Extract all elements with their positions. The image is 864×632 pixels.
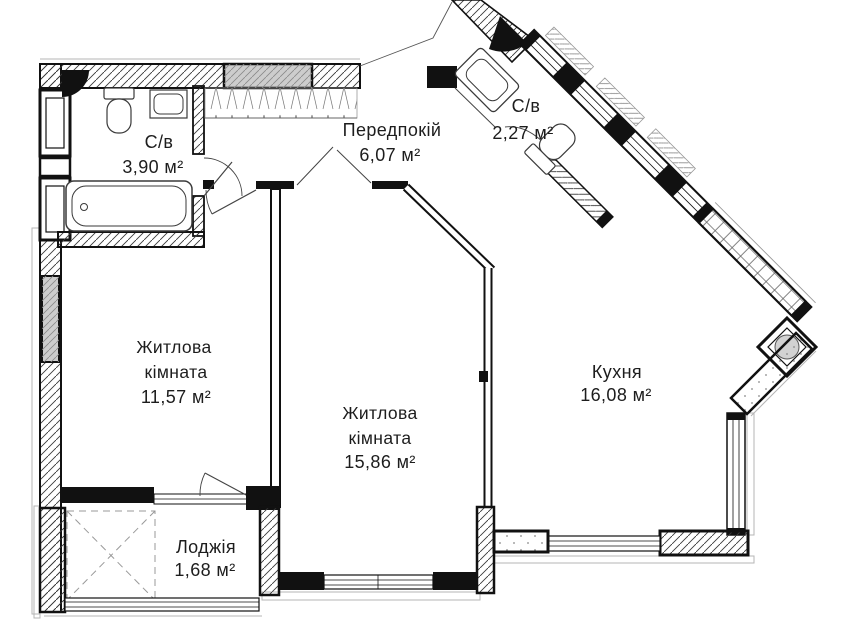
floor-plan-drawing: С/в 3,90 м² Передпокій 6,07 м² С/в 2,27 … (0, 0, 864, 632)
loggia-structure (40, 473, 280, 612)
corner-marker (62, 70, 89, 97)
room-label-kitchen: Кухня (592, 362, 642, 382)
room-label-loggia: Лоджія (176, 537, 236, 557)
room-label-living-2-line1: Житлова (342, 403, 417, 423)
kitchen-south-window (548, 536, 660, 551)
living-2-window (324, 575, 433, 589)
room-area-living-1: 11,57 м² (141, 387, 211, 407)
kitchen-east-window (727, 413, 745, 535)
room-label-living-1-line1: Житлова (136, 337, 211, 357)
room-area-kitchen: 16,08 м² (580, 385, 652, 405)
room-label-bathroom-1: С/в (145, 132, 174, 152)
top-wall-window (224, 64, 312, 88)
kitchen-east-corner (494, 318, 816, 555)
room-area-hallway: 6,07 м² (359, 145, 420, 165)
living-2-south-wall (279, 507, 494, 593)
room-labels: С/в 3,90 м² Передпокій 6,07 м² С/в 2,27 … (122, 96, 651, 580)
room-area-loggia: 1,68 м² (174, 560, 235, 580)
loggia-glazing (65, 598, 259, 611)
room-label-bathroom-2: С/в (512, 96, 541, 116)
room-label-living-2-line2: кімната (349, 428, 412, 448)
room-label-living-1-line2: кімната (145, 362, 208, 382)
living-1-door (206, 190, 256, 214)
sink-icon (150, 90, 187, 118)
entry (360, 0, 534, 128)
hallway-closet (205, 88, 357, 118)
loggia-door-window (154, 473, 248, 504)
room-label-hallway: Передпокій (343, 120, 442, 140)
loggia-x-brace (67, 511, 155, 600)
bathtub-icon (66, 181, 192, 231)
floor-plan: С/в 3,90 м² Передпокій 6,07 м² С/в 2,27 … (0, 0, 864, 632)
room-area-living-2: 15,86 м² (344, 452, 416, 472)
bathroom-1-door (204, 158, 242, 196)
left-wall-window (42, 276, 59, 362)
room-area-bathroom-1: 3,90 м² (122, 157, 183, 177)
toilet-icon (104, 88, 134, 133)
room-area-bathroom-2: 2,27 м² (492, 123, 553, 143)
